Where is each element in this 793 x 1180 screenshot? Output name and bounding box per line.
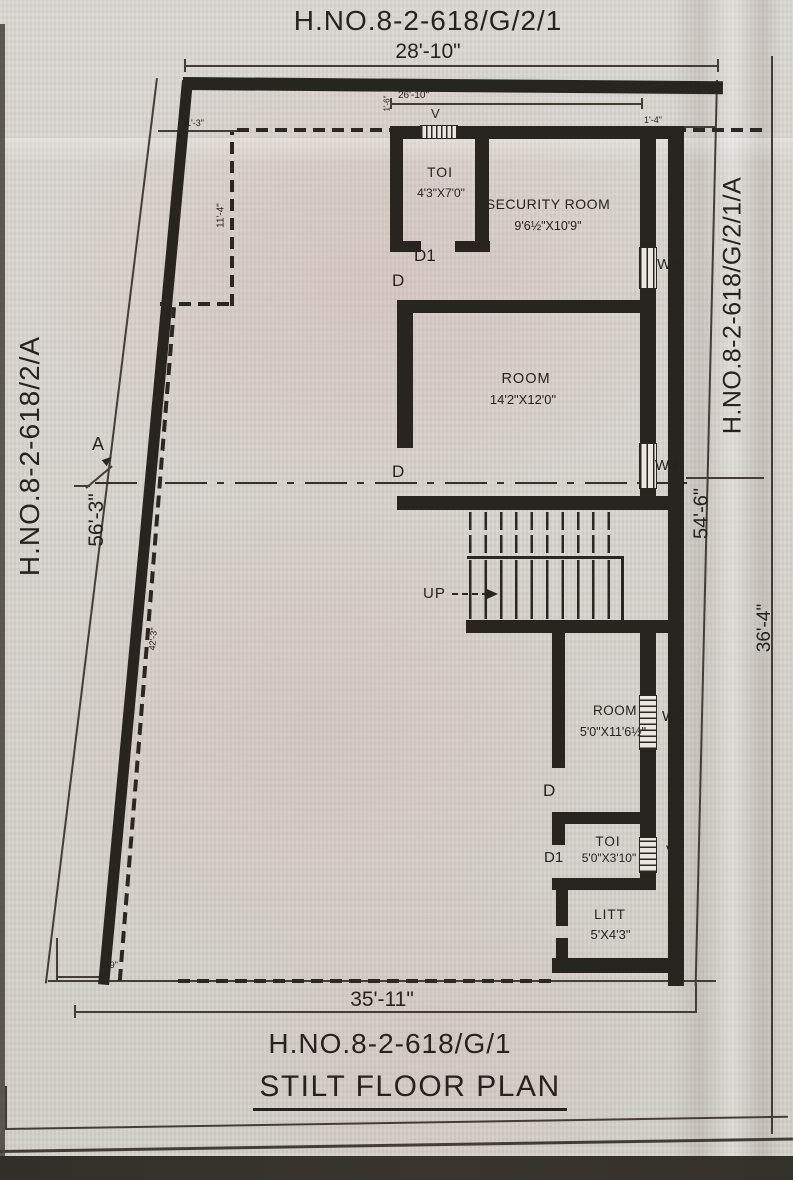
plan-title-text: STILT FLOOR PLAN <box>253 1070 566 1111</box>
window-marker-w3-upper: W3 <box>657 256 680 273</box>
door-marker-d1-lower: D1 <box>544 849 563 866</box>
vent-symbol-north <box>420 125 458 139</box>
stair-up-arrow-head <box>487 589 498 599</box>
sheet-frame-line-1 <box>6 1116 788 1130</box>
dim-column-recess: 11'-4" <box>216 181 227 251</box>
room-litt-name: LITT <box>580 907 640 922</box>
wall-east-inner-4 <box>640 633 656 695</box>
scan-edge-left <box>0 24 5 1180</box>
vent-marker-lower: V <box>666 842 675 858</box>
room-litt-size: 5'X4'3" <box>573 927 648 942</box>
room-security-name: SECURITY ROOM <box>478 196 618 212</box>
wall-north-extension <box>684 126 716 128</box>
wall-east-inner-1 <box>640 139 656 247</box>
wall-litt-west-b <box>556 938 568 960</box>
wall-east-inner-2 <box>640 289 656 443</box>
sheet-title-top: H.NO.8-2-618/G/2/1 <box>188 5 668 37</box>
stair-treads-dashed-b <box>469 535 623 553</box>
inner-dimension-line <box>391 103 643 105</box>
stair-up-label: UP <box>423 585 446 602</box>
room-toi-lower-name: TOI <box>578 834 638 849</box>
room-large-size: 14'2"X12'0" <box>453 392 593 407</box>
room-small-size: 5'0"X11'6½" <box>558 725 668 739</box>
floor-plan-sheet: H.NO.8-2-618/G/2/1 28'-10" 35'-11" H.NO.… <box>0 0 793 1180</box>
section-centerline <box>95 482 687 484</box>
room-toi-upper-name: TOI <box>408 164 472 180</box>
window-marker-w3-middle: W3 <box>655 457 678 474</box>
left-offset-line <box>158 130 238 132</box>
wall-north-outer <box>183 77 723 94</box>
stair-treads-dashed-a <box>469 512 623 530</box>
bottom-dim-tick-right <box>695 983 697 1013</box>
door-marker-d-upper: D <box>392 271 404 291</box>
wall-toi-litt-divider <box>552 878 656 890</box>
sheet-plan-title: STILT FLOOR PLAN <box>160 1070 660 1111</box>
bottom-dim-tick-left <box>74 1005 76 1018</box>
wall-room-small-west <box>552 633 565 768</box>
sheet-frame-left <box>5 1086 7 1130</box>
vent-marker-top: V <box>431 106 440 121</box>
dim-bottom-width: 35'-11" <box>282 988 482 1012</box>
wall-east-inner-5 <box>640 750 656 812</box>
dim-offset-top-right: 1'-4" <box>644 115 662 125</box>
wall-east-inner-6 <box>640 812 656 837</box>
wall-stair-top <box>397 496 684 510</box>
wall-building-south <box>552 958 684 973</box>
room-security-size: 9'6½"X10'9" <box>483 219 613 233</box>
wall-litt-west-a <box>556 890 568 926</box>
inner-dim-tick-right <box>641 98 643 109</box>
top-dim-tick-left <box>184 59 186 72</box>
dim-right-lower: 36'-4" <box>754 588 776 668</box>
dim-notch: 5'-9" <box>100 960 118 970</box>
dim-offset-top-left: 1'-6" <box>383 91 392 117</box>
door-marker-d-room: D <box>392 462 404 482</box>
top-dim-tick-right <box>717 59 719 72</box>
wall-room-large-west <box>397 300 413 448</box>
dim-left-height: 56'-3" <box>85 470 109 570</box>
top-dimension-line <box>185 65 719 67</box>
sheet-house-no-bottom: H.NO.8-2-618/G/1 <box>150 1028 630 1060</box>
wall-west-slanted <box>98 80 193 985</box>
stair-stringer-line <box>467 556 624 559</box>
scan-band-bottom <box>0 1156 793 1180</box>
wall-toi-lower-west <box>552 824 565 845</box>
upper-floor-projection-bottom <box>178 979 554 983</box>
window-symbol-w3-upper <box>639 247 657 289</box>
section-arrow-head <box>102 454 115 467</box>
room-small-name: ROOM <box>570 703 660 718</box>
left-boundary-house-no: H.NO.8-2-618/2/A <box>14 156 46 756</box>
column-recess-dashed-v <box>230 132 234 306</box>
dim-top-width: 28'-10" <box>328 40 528 64</box>
sheet-frame-line-2 <box>0 1138 793 1153</box>
dim-top-inner: 26'-10" <box>398 90 429 101</box>
stair-newel-line <box>621 556 624 620</box>
right-boundary-house-no: H.NO.8-2-618/G/2/1/A <box>719 136 748 476</box>
wall-security-south <box>397 300 656 313</box>
section-marker-a: A <box>92 434 104 455</box>
window-marker-w3-lower: W3 <box>662 708 685 725</box>
room-toi-lower-size: 5'0"X3'10" <box>570 851 648 865</box>
dim-right-upper: 54'-6" <box>691 469 714 559</box>
room-large-name: ROOM <box>461 371 591 387</box>
door-marker-d-small: D <box>543 781 555 801</box>
dim-offset-left-small: 1'-3" <box>186 118 204 128</box>
stair-up-arrow-dash <box>452 593 488 595</box>
door-marker-d1-upper: D1 <box>414 246 436 266</box>
room-toi-upper-size: 4'3"X7'0" <box>398 186 484 200</box>
wall-stair-bottom <box>466 620 684 633</box>
